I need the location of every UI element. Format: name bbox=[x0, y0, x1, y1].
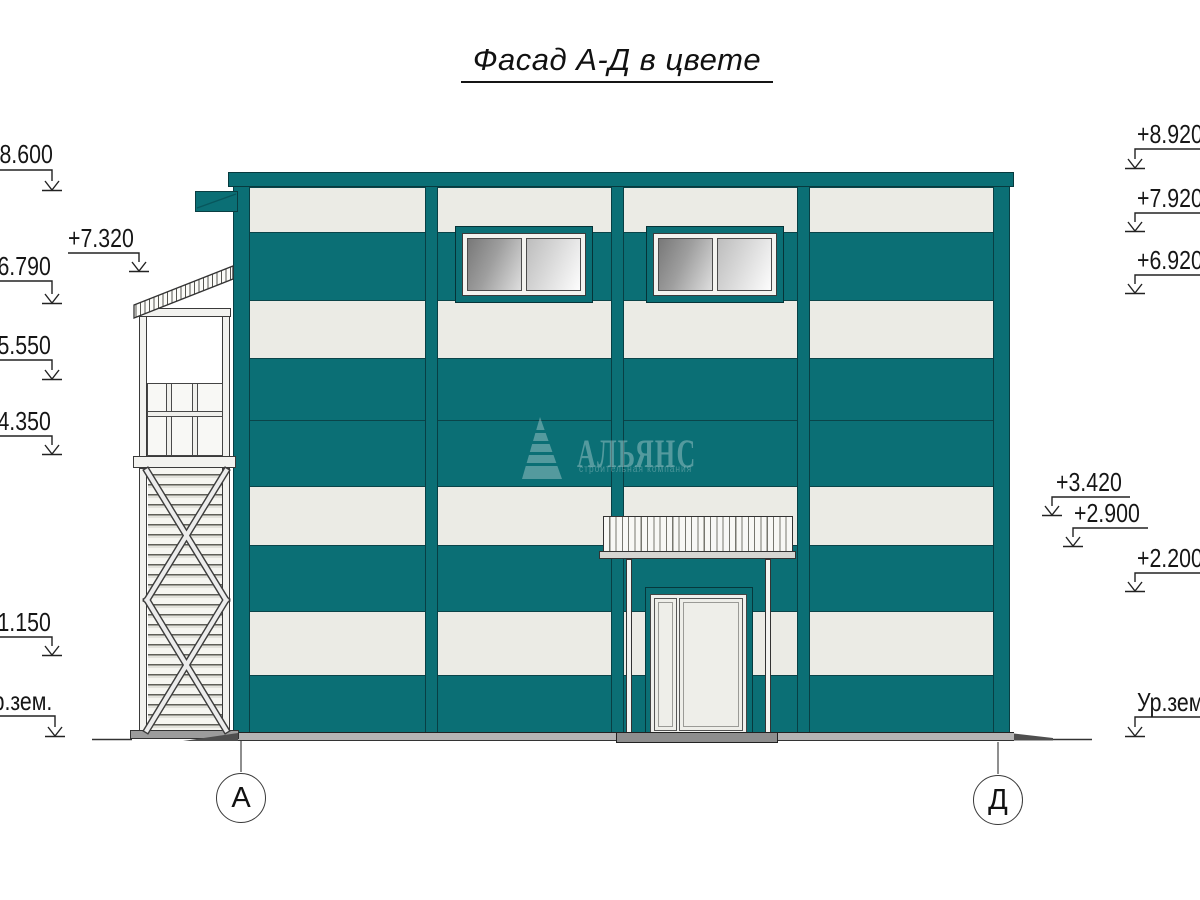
glazing-mullion bbox=[148, 411, 222, 417]
right-ramp bbox=[1014, 734, 1053, 741]
window-pane-left bbox=[658, 238, 713, 291]
canopy-post bbox=[765, 559, 771, 733]
elevation-label-right-0: +8.920 bbox=[1137, 119, 1200, 150]
door-side-panel bbox=[654, 598, 677, 731]
elevation-label-left-1: +7.320 bbox=[68, 223, 134, 254]
alliance-pyramid-icon bbox=[522, 417, 562, 479]
window-pane-left bbox=[467, 238, 522, 291]
window bbox=[646, 226, 784, 303]
title-wrap: Фасад А-Д в цвете bbox=[0, 42, 1200, 83]
glazing-mullion bbox=[192, 384, 198, 455]
parapet-coping bbox=[228, 172, 1014, 187]
facade-panel-joint bbox=[797, 187, 810, 733]
elevation-label-right-3: +3.420 bbox=[1056, 467, 1122, 498]
elevation-label-left-0: +8.600 bbox=[0, 139, 53, 170]
window-frame bbox=[653, 233, 777, 296]
door-panel-outline bbox=[658, 602, 673, 727]
stair-tower-glazing bbox=[147, 383, 223, 456]
elevation-label-left-4: +4.350 bbox=[0, 406, 51, 437]
watermark-company-subtitle: строительная компания bbox=[579, 463, 692, 475]
entrance-threshold bbox=[616, 732, 778, 743]
elevation-label-left-6: Ур.зем. bbox=[0, 686, 52, 717]
entrance-canopy bbox=[603, 516, 793, 552]
door-leaf bbox=[679, 598, 743, 731]
canopy-fascia bbox=[599, 551, 796, 559]
facade-corner-strip bbox=[993, 187, 1010, 733]
elevation-label-right-4: +2.900 bbox=[1074, 498, 1140, 529]
stair-tower-post bbox=[222, 316, 230, 457]
axis-label-d: Д bbox=[988, 784, 1008, 817]
canopy-post bbox=[626, 559, 632, 733]
axis-stems bbox=[241, 741, 998, 774]
glazing-mullion bbox=[166, 384, 172, 455]
elevation-label-right-1: +7.920 bbox=[1137, 183, 1200, 214]
stair-tower-post bbox=[139, 468, 147, 731]
stair-tower-post bbox=[139, 316, 147, 457]
axis-bubble-a: А bbox=[216, 773, 266, 823]
elevation-label-right-5: +2.200 bbox=[1137, 543, 1200, 574]
elevation-label-right-6: Ур.зем. bbox=[1137, 687, 1200, 718]
axis-label-a: А bbox=[231, 782, 250, 815]
stair-tower-post bbox=[222, 468, 230, 731]
drawing-title: Фасад А-Д в цвете bbox=[461, 42, 773, 83]
stair-treads bbox=[148, 468, 222, 731]
parapet-scupper bbox=[195, 191, 238, 212]
elevation-label-right-2: +6.920 bbox=[1137, 245, 1200, 276]
stair-tower-base bbox=[130, 730, 239, 739]
elevation-label-left-5: +1.150 bbox=[0, 607, 51, 638]
window-pane-right bbox=[717, 238, 772, 291]
facade-panel-joint bbox=[425, 187, 438, 733]
elevation-label-left-2: +6.790 bbox=[0, 251, 51, 282]
elevation-label-left-3: +5.550 bbox=[0, 330, 51, 361]
door-panel-outline bbox=[683, 602, 739, 727]
facade-drawing-canvas: Фасад А-Д в цвете bbox=[0, 0, 1200, 900]
stair-landing-slab bbox=[133, 456, 236, 468]
window-pane-right bbox=[526, 238, 581, 291]
window bbox=[455, 226, 593, 303]
stair-tower-top-beam bbox=[138, 308, 231, 317]
axis-bubble-d: Д bbox=[973, 775, 1023, 825]
window-frame bbox=[462, 233, 586, 296]
